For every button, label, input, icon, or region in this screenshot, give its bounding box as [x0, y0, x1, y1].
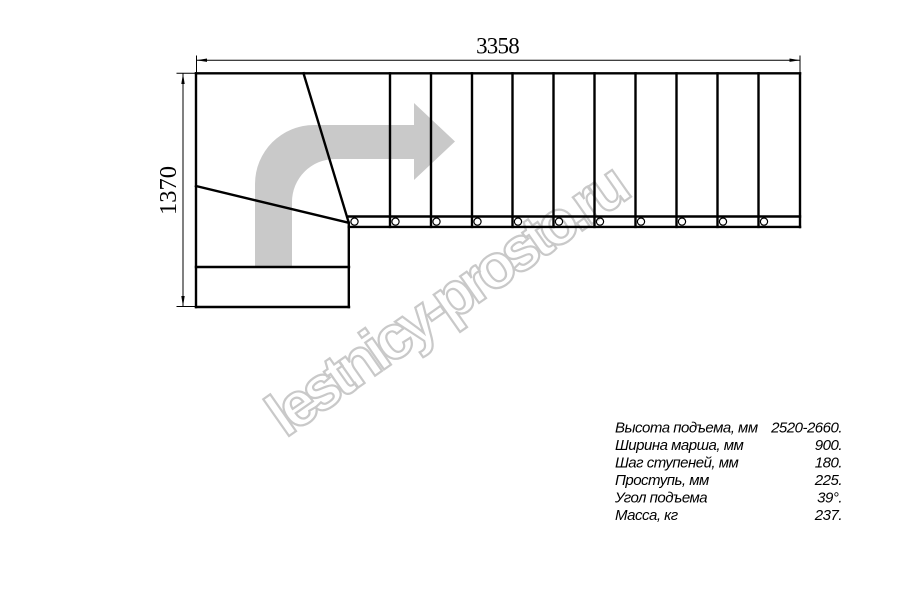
svg-text:1370: 1370 — [155, 166, 182, 215]
svg-text:237.: 237. — [814, 507, 842, 524]
svg-text:2520-2660.: 2520-2660. — [770, 420, 842, 437]
svg-text:225.: 225. — [814, 472, 842, 489]
svg-text:3358: 3358 — [476, 34, 519, 59]
svg-text:Масса, кг: Масса, кг — [615, 507, 679, 524]
svg-text:39°.: 39°. — [817, 489, 842, 506]
svg-text:Высота подъема, мм: Высота подъема, мм — [615, 420, 758, 437]
svg-text:180.: 180. — [815, 455, 842, 472]
svg-text:Ширина марша, мм: Ширина марша, мм — [615, 437, 743, 454]
svg-text:900.: 900. — [815, 437, 842, 454]
svg-text:Угол подъема: Угол подъема — [614, 489, 707, 506]
svg-text:Шаг ступеней, мм: Шаг ступеней, мм — [615, 455, 739, 472]
svg-text:Проступь, мм: Проступь, мм — [615, 472, 709, 489]
svg-text:lestnicy-prosto.ru: lestnicy-prosto.ru — [254, 151, 639, 450]
